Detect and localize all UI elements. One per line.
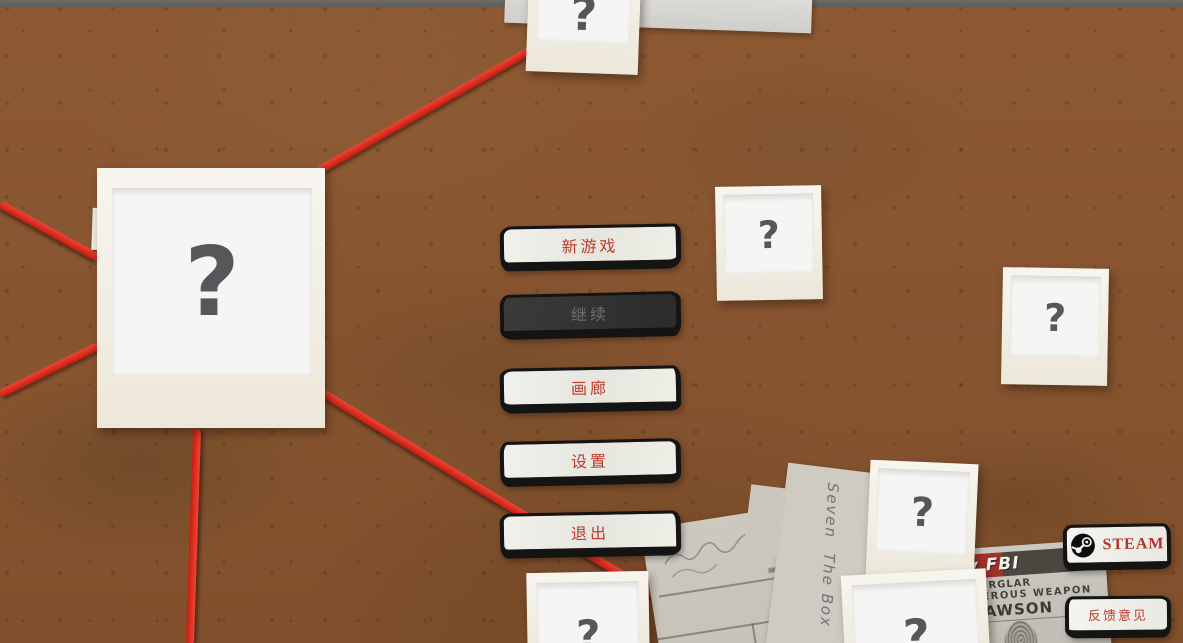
polaroid-photo-unknown: ?	[97, 168, 325, 428]
red-string	[186, 429, 201, 643]
new-game-button[interactable]: 新游戏	[500, 223, 682, 271]
polaroid-photo-unknown: ?	[865, 460, 978, 583]
settings-button[interactable]: 设置	[500, 438, 682, 487]
fingerprint-image	[1004, 620, 1039, 643]
continue-button-disabled[interactable]: 继续	[500, 291, 682, 340]
polaroid-photo-unknown: ?	[1001, 267, 1109, 386]
note-text: SevenThe Box	[816, 475, 842, 636]
steam-logo-icon	[1069, 532, 1095, 558]
steam-button-label: STEAM	[1102, 535, 1164, 554]
red-string	[316, 45, 536, 174]
exit-button[interactable]: 退出	[500, 510, 682, 558]
feedback-button[interactable]: 反馈意见	[1065, 596, 1171, 639]
polaroid-photo-unknown: ?	[526, 571, 649, 643]
polaroid-photo-unknown: ?	[526, 0, 643, 75]
gallery-button[interactable]: 画廊	[500, 365, 682, 413]
steam-page-button[interactable]: STEAM	[1063, 523, 1172, 571]
question-mark: ?	[910, 493, 935, 534]
question-mark: ?	[570, 0, 598, 37]
polaroid-photo-unknown: ?	[841, 568, 991, 643]
question-mark: ?	[1044, 298, 1067, 336]
question-mark: ?	[757, 216, 780, 254]
red-string	[0, 342, 101, 398]
question-mark: ?	[576, 614, 601, 643]
red-string	[0, 200, 100, 261]
detective-corkboard-background: ? ? ? ? Seve	[0, 0, 1183, 643]
question-mark: ?	[184, 236, 239, 331]
polaroid-photo-unknown: ?	[715, 185, 823, 301]
question-mark: ?	[902, 612, 931, 643]
